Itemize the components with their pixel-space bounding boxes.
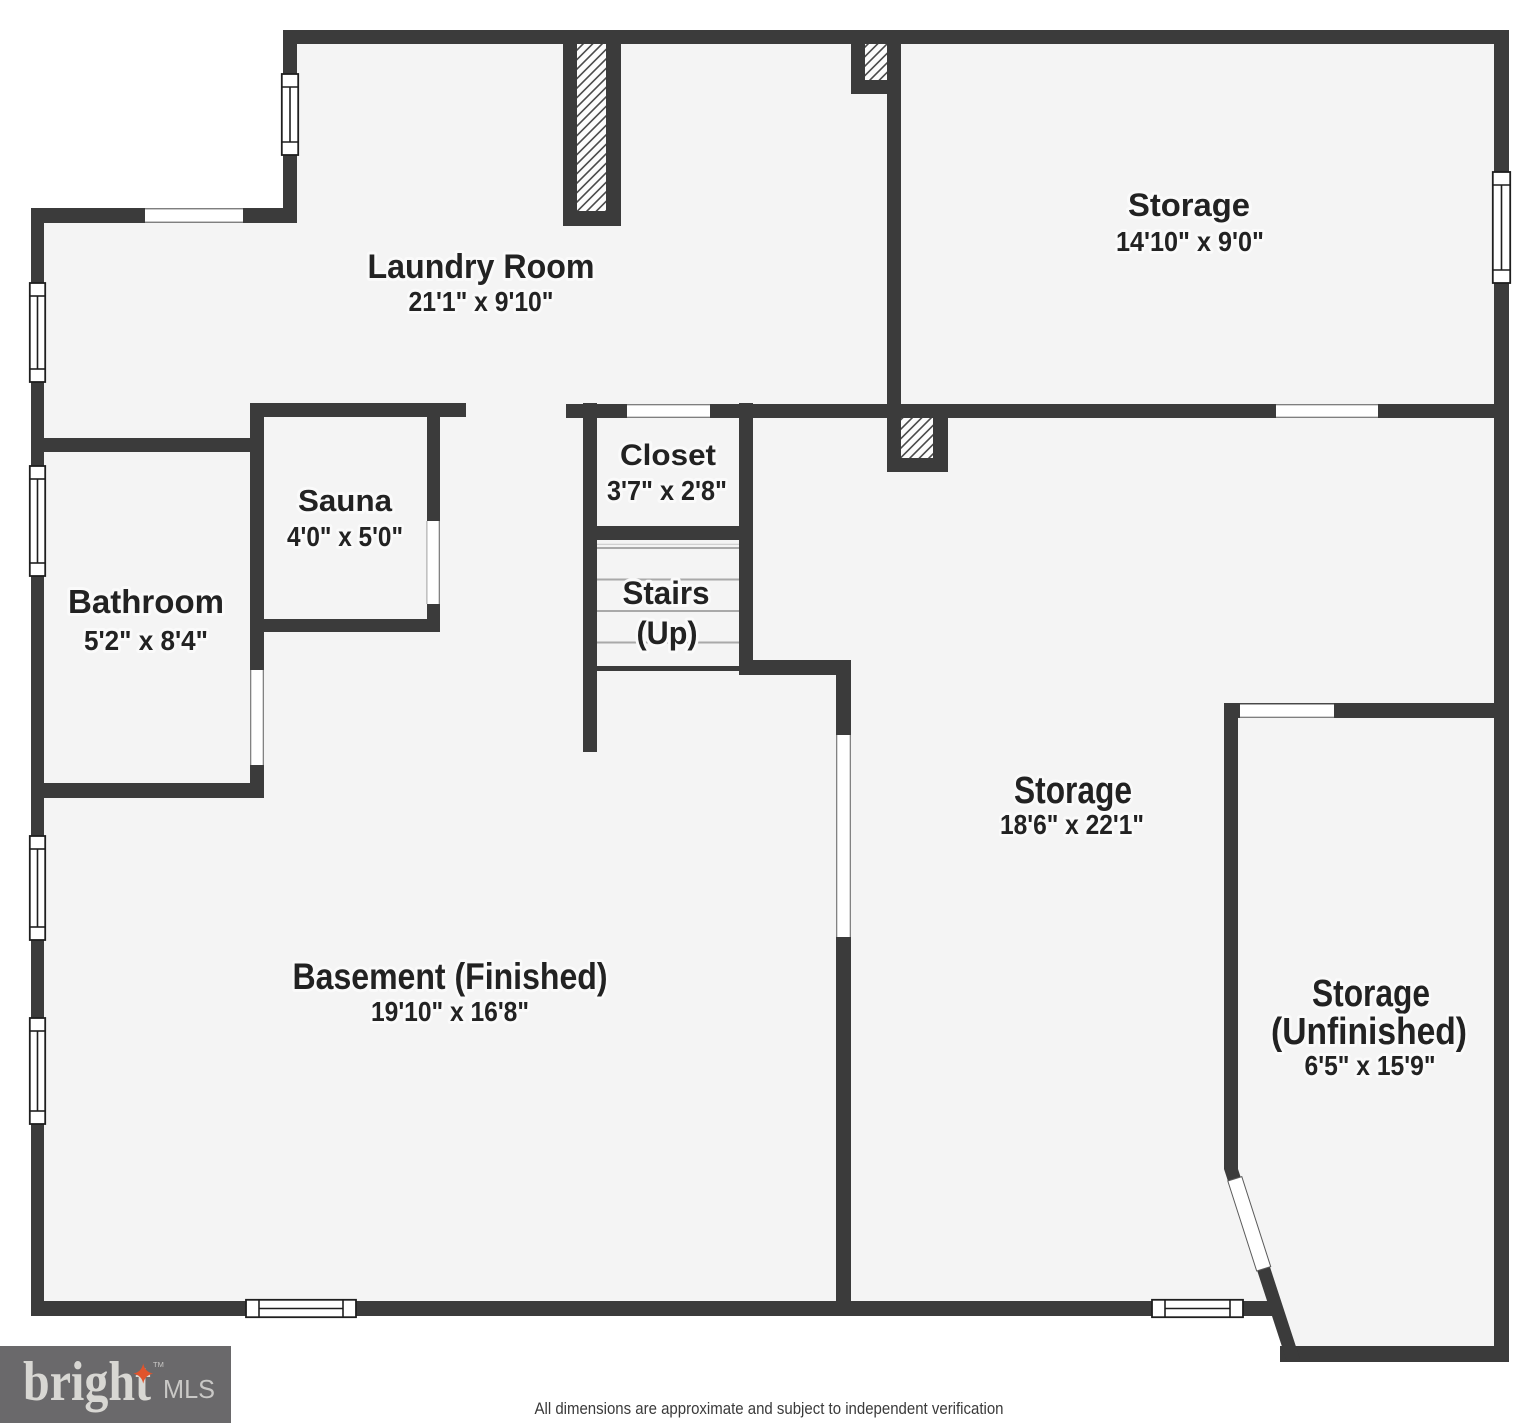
svg-text:Bathroom: Bathroom bbox=[68, 583, 224, 620]
svg-text:Basement (Finished): Basement (Finished) bbox=[293, 956, 608, 997]
svg-text:TM: TM bbox=[153, 1360, 164, 1369]
svg-text:Sauna: Sauna bbox=[298, 483, 393, 518]
svg-text:Storage: Storage bbox=[1312, 973, 1430, 1015]
svg-text:(Unfinished): (Unfinished) bbox=[1271, 1011, 1467, 1053]
svg-text:4'0" x 5'0": 4'0" x 5'0" bbox=[287, 521, 403, 552]
svg-text:Storage: Storage bbox=[1014, 770, 1132, 812]
svg-text:Closet: Closet bbox=[620, 439, 716, 472]
svg-text:21'1" x 9'10": 21'1" x 9'10" bbox=[409, 286, 554, 317]
svg-text:Stairs: Stairs bbox=[623, 575, 710, 611]
svg-text:14'10" x 9'0": 14'10" x 9'0" bbox=[1116, 226, 1264, 257]
svg-text:(Up): (Up) bbox=[637, 615, 698, 651]
svg-text:3'7" x 2'8": 3'7" x 2'8" bbox=[607, 475, 727, 506]
svg-text:18'6" x 22'1": 18'6" x 22'1" bbox=[1000, 809, 1144, 840]
svg-text:19'10" x 16'8": 19'10" x 16'8" bbox=[371, 996, 529, 1027]
svg-text:Storage: Storage bbox=[1128, 187, 1250, 223]
svg-text:bright: bright bbox=[23, 1351, 151, 1413]
svg-text:MLS: MLS bbox=[163, 1374, 215, 1404]
svg-text:All dimensions are approximate: All dimensions are approximate and subje… bbox=[535, 1399, 1004, 1418]
svg-text:5'2" x 8'4": 5'2" x 8'4" bbox=[84, 625, 208, 656]
svg-text:Laundry Room: Laundry Room bbox=[368, 248, 595, 286]
svg-text:6'5" x 15'9": 6'5" x 15'9" bbox=[1305, 1050, 1436, 1081]
